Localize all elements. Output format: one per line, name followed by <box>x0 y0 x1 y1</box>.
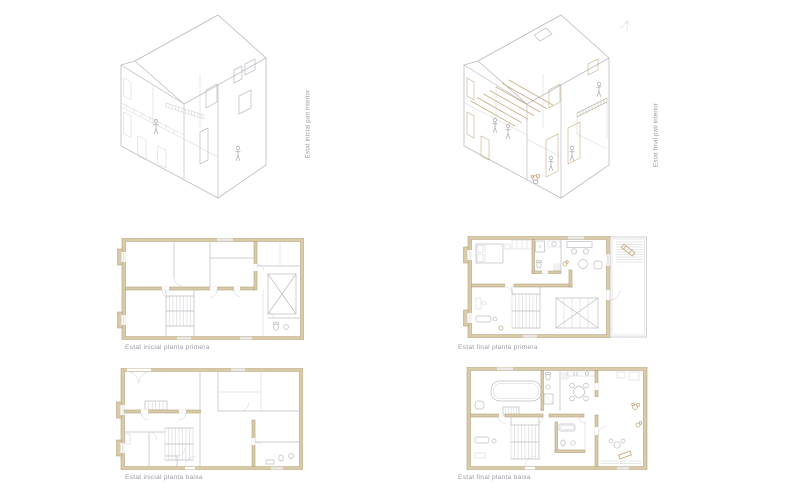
kitchen <box>567 371 595 401</box>
interior-walls <box>125 372 300 467</box>
living-furniture <box>475 401 519 415</box>
bathroom-bottom <box>555 417 585 453</box>
fixtures <box>266 454 293 464</box>
bathroom-fixtures <box>274 322 289 330</box>
bedroom-bottom-left <box>475 437 496 458</box>
hall-walls <box>165 456 177 467</box>
lounge-chair <box>621 244 635 256</box>
stairs <box>511 425 539 459</box>
terrace <box>616 242 643 262</box>
axon-final-label: Estat final pati interior <box>653 103 660 167</box>
bathroom <box>532 240 561 274</box>
plan-ground-final-panel <box>461 367 649 470</box>
plan-first-initial-panel <box>116 238 304 340</box>
lounge-chair <box>619 451 632 459</box>
living-furniture <box>476 298 503 330</box>
plan-first-final-panel <box>462 236 650 338</box>
axon-initial-label: Estat inicial pati interior <box>305 90 312 159</box>
plan-ground-initial-panel <box>115 368 303 470</box>
plan-ground-initial-drawing <box>115 368 303 470</box>
plan-ground-initial-caption: Estat inicial planta baixa <box>125 474 203 481</box>
dining-table <box>491 381 541 401</box>
axonometric-initial-drawing <box>88 8 303 208</box>
patio <box>601 372 642 464</box>
bedroom-furniture <box>476 240 532 263</box>
stairs <box>166 296 194 326</box>
stairs <box>512 294 540 328</box>
shelving <box>145 401 167 410</box>
drawing-sheet: Estat inicial pati interior <box>0 0 785 491</box>
axonometric-final-drawing <box>431 8 656 213</box>
plan-first-final-drawing <box>462 236 650 338</box>
plan-first-initial-caption: Estat inicial planta primera <box>125 344 210 351</box>
double-height-void <box>556 298 598 328</box>
house-shell <box>121 15 266 198</box>
plan-ground-final-drawing <box>461 367 649 470</box>
plan-first-final-caption: Estat final planta primera <box>458 344 538 351</box>
north-arrow-icon <box>620 21 631 32</box>
plan-first-initial-drawing <box>116 238 304 340</box>
stairs <box>165 428 193 460</box>
axonometric-final-panel <box>431 8 656 213</box>
patio-shaft <box>268 274 296 314</box>
plan-ground-final-caption: Estat final planta baixa <box>458 474 531 481</box>
house-shell <box>464 15 609 198</box>
axonometric-initial-panel <box>88 8 303 208</box>
study-furniture <box>563 242 602 270</box>
bathroom-top <box>541 371 568 411</box>
entrance-doors <box>127 372 195 467</box>
